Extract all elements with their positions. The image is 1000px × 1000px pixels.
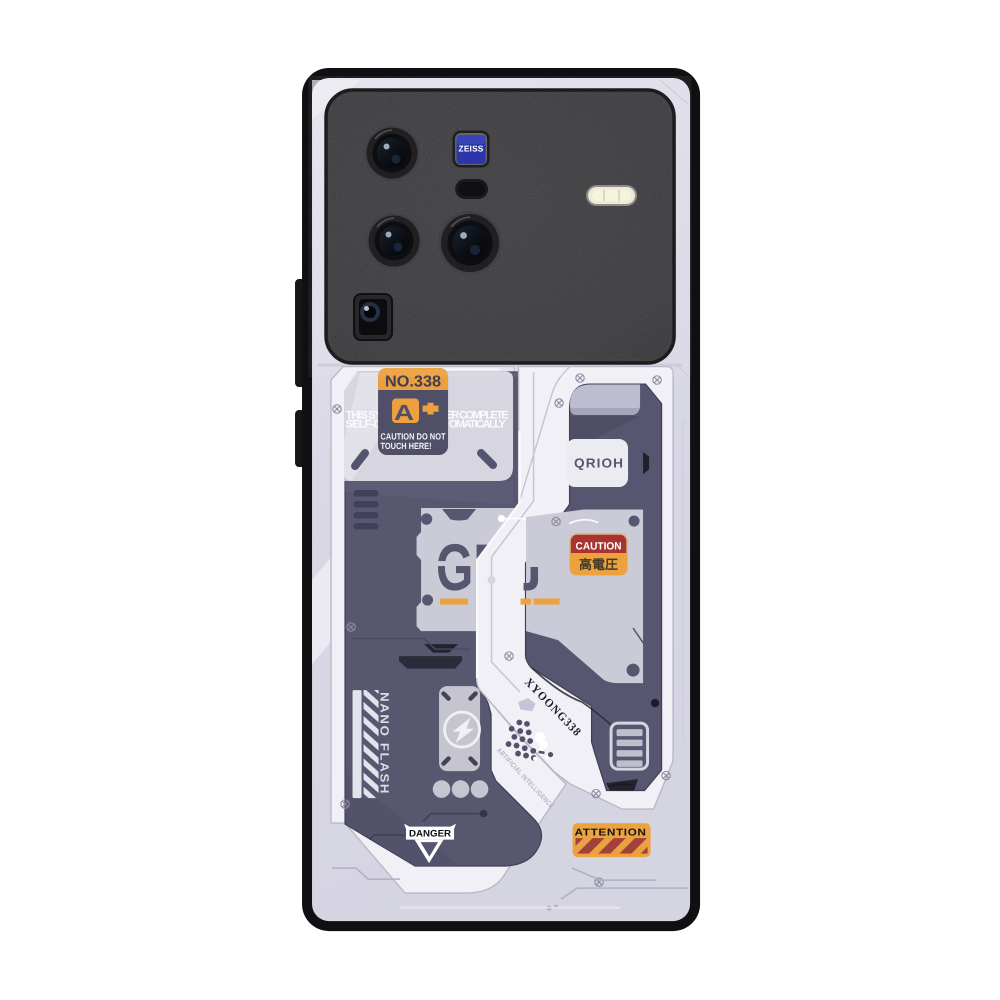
svg-text:ZEISS: ZEISS <box>459 144 484 154</box>
svg-text:NO.338: NO.338 <box>385 374 441 391</box>
svg-text:ATTENTION: ATTENTION <box>575 828 647 839</box>
svg-text:DANGER: DANGER <box>409 829 451 840</box>
svg-text:高電圧: 高電圧 <box>579 557 618 572</box>
svg-text:QRIOH: QRIOH <box>574 456 624 471</box>
svg-text:CAUTION: CAUTION <box>576 541 622 553</box>
svg-text:TOUCH HERE!: TOUCH HERE! <box>381 441 432 451</box>
svg-text:OMATICALLY: OMATICALLY <box>449 419 507 431</box>
svg-text:NANO FLASH: NANO FLASH <box>378 692 392 795</box>
svg-text:SELF-D: SELF-D <box>346 419 382 431</box>
svg-text:A: A <box>394 400 414 425</box>
svg-text:CAUTION DO NOT: CAUTION DO NOT <box>381 432 446 442</box>
